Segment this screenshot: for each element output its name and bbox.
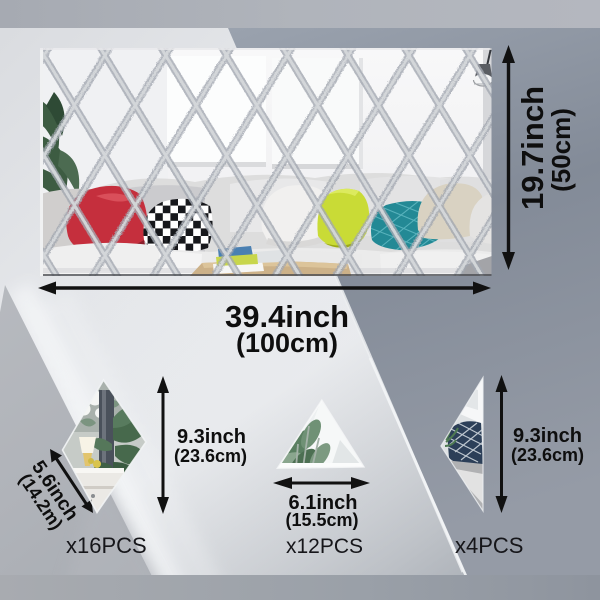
svg-text:x16PCS: x16PCS — [66, 533, 147, 558]
svg-text:(15.5cm): (15.5cm) — [285, 510, 358, 530]
svg-text:9.3inch: 9.3inch — [513, 425, 582, 447]
svg-text:(50cm): (50cm) — [546, 108, 576, 192]
svg-text:9.3inch: 9.3inch — [177, 426, 246, 448]
svg-text:(23.6cm): (23.6cm) — [174, 446, 247, 466]
svg-text:x12PCS: x12PCS — [286, 535, 363, 558]
svg-text:19.7inch: 19.7inch — [515, 86, 550, 210]
svg-text:(100cm): (100cm) — [236, 328, 338, 358]
svg-text:x4PCS: x4PCS — [455, 533, 523, 558]
svg-text:(23.6cm): (23.6cm) — [511, 445, 584, 465]
